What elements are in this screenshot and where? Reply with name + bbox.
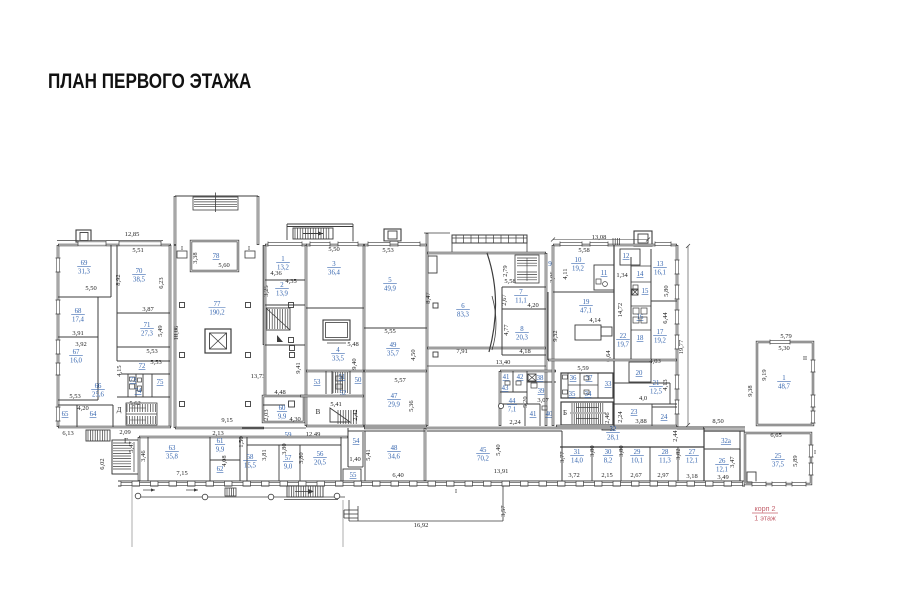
svg-text:30: 30 bbox=[605, 449, 612, 456]
svg-text:9,41: 9,41 bbox=[295, 362, 302, 373]
svg-text:9: 9 bbox=[548, 260, 552, 268]
svg-text:5,48: 5,48 bbox=[347, 341, 358, 348]
svg-text:70,2: 70,2 bbox=[477, 456, 489, 463]
svg-text:12: 12 bbox=[623, 253, 630, 260]
svg-text:72: 72 bbox=[139, 363, 146, 370]
svg-text:36: 36 bbox=[570, 375, 577, 382]
svg-text:I: I bbox=[455, 489, 457, 495]
svg-text:5,49: 5,49 bbox=[157, 325, 164, 336]
svg-text:6,23: 6,23 bbox=[158, 277, 165, 288]
svg-text:12,85: 12,85 bbox=[125, 231, 140, 238]
svg-text:9,0: 9,0 bbox=[284, 464, 293, 471]
svg-text:8: 8 bbox=[520, 326, 524, 333]
svg-text:6,13: 6,13 bbox=[62, 430, 73, 437]
svg-text:5,40: 5,40 bbox=[495, 444, 502, 455]
svg-text:1,50: 1,50 bbox=[238, 436, 245, 447]
svg-text:5,41: 5,41 bbox=[330, 401, 341, 408]
svg-text:25,6: 25,6 bbox=[92, 392, 104, 399]
svg-text:73: 73 bbox=[130, 377, 137, 384]
svg-text:В: В bbox=[316, 408, 321, 416]
svg-text:II: II bbox=[803, 356, 807, 362]
svg-text:Б: Б bbox=[563, 409, 567, 417]
svg-text:16,92: 16,92 bbox=[414, 522, 429, 529]
svg-text:1,34: 1,34 bbox=[616, 272, 628, 279]
svg-text:14,72: 14,72 bbox=[617, 303, 624, 318]
svg-text:35,8: 35,8 bbox=[166, 454, 178, 461]
svg-text:4,35: 4,35 bbox=[285, 278, 296, 285]
svg-text:2,67: 2,67 bbox=[501, 294, 508, 306]
svg-text:17,4: 17,4 bbox=[72, 317, 84, 324]
svg-text:15: 15 bbox=[642, 288, 649, 295]
svg-text:70: 70 bbox=[136, 268, 143, 275]
svg-text:4,20: 4,20 bbox=[527, 302, 538, 309]
svg-text:35: 35 bbox=[569, 391, 576, 398]
svg-text:17: 17 bbox=[657, 329, 664, 336]
svg-text:74: 74 bbox=[135, 388, 142, 395]
svg-text:6: 6 bbox=[461, 303, 465, 310]
svg-text:16,1: 16,1 bbox=[654, 270, 666, 277]
svg-text:11,3: 11,3 bbox=[659, 458, 671, 465]
svg-text:65: 65 bbox=[62, 411, 69, 418]
svg-text:5,60: 5,60 bbox=[218, 262, 229, 269]
svg-text:50: 50 bbox=[355, 377, 362, 384]
svg-text:5,80: 5,80 bbox=[663, 285, 670, 296]
svg-text:35,7: 35,7 bbox=[387, 351, 399, 358]
svg-text:4,03: 4,03 bbox=[649, 358, 660, 365]
svg-text:3,49: 3,49 bbox=[717, 474, 728, 481]
svg-text:29,9: 29,9 bbox=[388, 402, 400, 409]
svg-text:64: 64 bbox=[90, 411, 97, 418]
svg-text:4,13: 4,13 bbox=[662, 379, 669, 390]
svg-text:15,5: 15,5 bbox=[244, 463, 256, 470]
svg-text:11: 11 bbox=[601, 270, 608, 277]
svg-text:11,1: 11,1 bbox=[515, 298, 527, 305]
svg-text:20: 20 bbox=[636, 370, 643, 377]
svg-text:2,97: 2,97 bbox=[657, 472, 669, 479]
svg-text:33: 33 bbox=[605, 381, 612, 388]
svg-text:23: 23 bbox=[631, 409, 638, 416]
svg-text:3,91: 3,91 bbox=[72, 330, 83, 337]
svg-text:5,41: 5,41 bbox=[365, 449, 372, 460]
svg-text:12,1: 12,1 bbox=[716, 467, 728, 474]
svg-text:2,24: 2,24 bbox=[617, 411, 624, 423]
svg-text:9,9: 9,9 bbox=[216, 447, 225, 454]
svg-text:38,5: 38,5 bbox=[133, 277, 145, 284]
svg-text:14,0: 14,0 bbox=[571, 458, 583, 465]
svg-text:8,50: 8,50 bbox=[712, 418, 723, 425]
svg-text:34: 34 bbox=[585, 391, 592, 398]
svg-text:19: 19 bbox=[583, 299, 590, 306]
svg-text:20,3: 20,3 bbox=[516, 335, 528, 342]
svg-text:9,40: 9,40 bbox=[351, 358, 358, 369]
svg-text:6,65: 6,65 bbox=[770, 432, 781, 439]
svg-text:57: 57 bbox=[285, 455, 292, 462]
svg-text:9,15: 9,15 bbox=[221, 417, 232, 424]
svg-text:51: 51 bbox=[339, 374, 346, 381]
svg-text:32: 32 bbox=[610, 426, 617, 433]
svg-text:38: 38 bbox=[537, 375, 544, 382]
svg-text:16: 16 bbox=[637, 314, 644, 321]
svg-text:9,38: 9,38 bbox=[747, 385, 754, 396]
svg-text:3,47: 3,47 bbox=[729, 456, 736, 468]
svg-text:5,53: 5,53 bbox=[382, 247, 393, 254]
svg-text:4,11: 4,11 bbox=[562, 268, 569, 279]
svg-text:5,50: 5,50 bbox=[85, 285, 96, 292]
svg-text:1,40: 1,40 bbox=[349, 456, 360, 463]
svg-text:36,4: 36,4 bbox=[328, 270, 340, 277]
svg-text:28: 28 bbox=[662, 449, 669, 456]
svg-text:2,03: 2,03 bbox=[263, 409, 270, 420]
svg-text:71: 71 bbox=[144, 322, 151, 329]
svg-text:58: 58 bbox=[247, 454, 254, 461]
svg-text:5,89: 5,89 bbox=[792, 455, 799, 466]
svg-text:5,59: 5,59 bbox=[577, 365, 588, 372]
svg-text:5,51: 5,51 bbox=[132, 247, 143, 254]
svg-text:ПЛАН ПЕРВОГО ЭТАЖА: ПЛАН ПЕРВОГО ЭТАЖА bbox=[48, 70, 251, 93]
svg-text:37,5: 37,5 bbox=[772, 462, 784, 469]
svg-text:18,06: 18,06 bbox=[173, 325, 180, 340]
svg-text:3,88: 3,88 bbox=[635, 418, 646, 425]
svg-text:6,40: 6,40 bbox=[392, 472, 403, 479]
svg-text:10: 10 bbox=[575, 257, 582, 264]
svg-text:3,92: 3,92 bbox=[75, 341, 86, 348]
svg-text:4,50: 4,50 bbox=[410, 349, 417, 360]
svg-text:7,15: 7,15 bbox=[176, 470, 187, 477]
svg-text:2,44: 2,44 bbox=[672, 430, 679, 442]
svg-text:49: 49 bbox=[390, 342, 397, 349]
svg-text:корп 2: корп 2 bbox=[754, 504, 775, 513]
svg-text:34,6: 34,6 bbox=[388, 454, 400, 461]
svg-text:33,5: 33,5 bbox=[332, 356, 344, 363]
svg-text:5,58: 5,58 bbox=[578, 247, 589, 254]
svg-text:1: 1 bbox=[782, 375, 785, 382]
svg-text:54: 54 bbox=[353, 438, 360, 445]
svg-text:78: 78 bbox=[213, 253, 220, 260]
svg-text:4,20: 4,20 bbox=[77, 405, 88, 412]
svg-text:13,40: 13,40 bbox=[496, 359, 511, 366]
svg-text:Д: Д bbox=[117, 406, 122, 414]
svg-text:1: 1 bbox=[281, 256, 284, 263]
svg-text:5,36: 5,36 bbox=[408, 400, 415, 412]
svg-text:1 этаж: 1 этаж bbox=[754, 514, 776, 523]
svg-text:190,2: 190,2 bbox=[209, 310, 225, 317]
svg-text:8,47: 8,47 bbox=[425, 292, 432, 304]
svg-text:5,50: 5,50 bbox=[328, 246, 339, 253]
svg-text:29: 29 bbox=[634, 449, 641, 456]
svg-text:12,5: 12,5 bbox=[650, 389, 662, 396]
svg-text:20,5: 20,5 bbox=[314, 460, 326, 467]
svg-text:45: 45 bbox=[480, 447, 487, 454]
svg-text:2,67: 2,67 bbox=[630, 472, 642, 479]
svg-text:41: 41 bbox=[503, 374, 510, 381]
svg-text:9,32: 9,32 bbox=[552, 330, 559, 341]
svg-text:2,42: 2,42 bbox=[352, 409, 359, 420]
svg-text:39: 39 bbox=[538, 388, 545, 395]
svg-text:47: 47 bbox=[391, 393, 398, 400]
svg-text:13: 13 bbox=[657, 261, 664, 268]
svg-text:2,15: 2,15 bbox=[601, 472, 612, 479]
svg-text:19,77: 19,77 bbox=[678, 339, 685, 354]
svg-text:3,38: 3,38 bbox=[192, 252, 199, 263]
svg-text:5,58: 5,58 bbox=[504, 278, 515, 285]
svg-text:26: 26 bbox=[719, 458, 726, 465]
svg-text:13,9: 13,9 bbox=[276, 291, 288, 298]
svg-text:55: 55 bbox=[350, 472, 357, 479]
svg-text:69: 69 bbox=[81, 260, 88, 267]
svg-text:13,08: 13,08 bbox=[592, 234, 607, 241]
svg-text:5,30: 5,30 bbox=[778, 345, 789, 352]
svg-text:5,55: 5,55 bbox=[384, 328, 395, 335]
svg-text:5,47: 5,47 bbox=[128, 441, 135, 453]
svg-text:I: I bbox=[814, 450, 816, 456]
svg-text:4,08: 4,08 bbox=[221, 455, 228, 466]
svg-text:3,25: 3,25 bbox=[263, 285, 270, 296]
svg-text:3,72: 3,72 bbox=[568, 472, 579, 479]
svg-text:3,80: 3,80 bbox=[589, 445, 596, 456]
svg-text:5,57: 5,57 bbox=[394, 377, 406, 384]
svg-text:12,1: 12,1 bbox=[686, 458, 698, 465]
svg-text:43: 43 bbox=[502, 385, 509, 392]
svg-text:60: 60 bbox=[279, 405, 286, 412]
svg-text:3,80: 3,80 bbox=[298, 452, 305, 463]
svg-text:5,53: 5,53 bbox=[69, 393, 80, 400]
svg-text:62: 62 bbox=[217, 466, 224, 473]
svg-text:77: 77 bbox=[214, 301, 221, 308]
svg-text:21: 21 bbox=[653, 380, 660, 387]
svg-text:4,18: 4,18 bbox=[519, 348, 530, 355]
svg-text:19,2: 19,2 bbox=[572, 266, 584, 273]
svg-text:63: 63 bbox=[169, 445, 176, 452]
svg-text:19,2: 19,2 bbox=[654, 338, 666, 345]
svg-text:83,3: 83,3 bbox=[457, 312, 469, 319]
svg-text:5,20: 5,20 bbox=[522, 396, 529, 407]
svg-text:4,77: 4,77 bbox=[503, 324, 510, 336]
svg-text:48,7: 48,7 bbox=[778, 384, 790, 391]
svg-text:3,18: 3,18 bbox=[686, 473, 697, 480]
svg-text:31: 31 bbox=[574, 449, 581, 456]
svg-text:32а: 32а bbox=[721, 438, 731, 445]
svg-text:5,79: 5,79 bbox=[780, 333, 791, 340]
svg-text:66: 66 bbox=[95, 383, 102, 390]
svg-text:28,1: 28,1 bbox=[607, 435, 619, 442]
svg-text:4,15: 4,15 bbox=[116, 365, 123, 376]
svg-text:3: 3 bbox=[332, 261, 336, 268]
svg-text:7,1: 7,1 bbox=[508, 407, 517, 414]
svg-text:56: 56 bbox=[317, 451, 324, 458]
svg-text:48: 48 bbox=[391, 445, 398, 452]
svg-text:3,80: 3,80 bbox=[618, 445, 625, 456]
svg-text:47,1: 47,1 bbox=[580, 308, 592, 315]
svg-text:3,81: 3,81 bbox=[261, 449, 268, 460]
svg-text:2: 2 bbox=[280, 282, 284, 289]
svg-text:19,7: 19,7 bbox=[617, 342, 629, 349]
svg-text:7: 7 bbox=[519, 289, 523, 296]
svg-text:75: 75 bbox=[157, 379, 164, 386]
svg-text:4,30: 4,30 bbox=[289, 416, 300, 423]
svg-text:13,91: 13,91 bbox=[494, 468, 509, 475]
svg-text:4,36: 4,36 bbox=[270, 270, 282, 277]
svg-text:16,0: 16,0 bbox=[70, 358, 82, 365]
svg-text:24: 24 bbox=[661, 414, 668, 421]
svg-text:2,13: 2,13 bbox=[212, 430, 223, 437]
svg-text:3,77: 3,77 bbox=[559, 451, 566, 463]
svg-text:5,53: 5,53 bbox=[146, 348, 157, 355]
svg-text:6,44: 6,44 bbox=[662, 312, 669, 324]
svg-text:7,91: 7,91 bbox=[456, 348, 467, 355]
svg-text:4,0: 4,0 bbox=[639, 395, 647, 402]
svg-text:18: 18 bbox=[637, 335, 644, 342]
svg-text:2,46: 2,46 bbox=[604, 412, 611, 424]
svg-text:3,57: 3,57 bbox=[500, 505, 507, 517]
svg-text:49,9: 49,9 bbox=[384, 286, 396, 293]
svg-text:8,2: 8,2 bbox=[604, 458, 613, 465]
svg-text:2,79: 2,79 bbox=[502, 265, 509, 276]
svg-text:2,09: 2,09 bbox=[119, 429, 130, 436]
svg-text:27: 27 bbox=[689, 449, 696, 456]
svg-text:3,46: 3,46 bbox=[140, 450, 147, 462]
svg-text:3,82: 3,82 bbox=[675, 448, 682, 459]
svg-text:10,1: 10,1 bbox=[631, 458, 643, 465]
svg-text:5,53: 5,53 bbox=[150, 359, 161, 366]
svg-text:3,87: 3,87 bbox=[142, 306, 154, 313]
svg-text:44: 44 bbox=[509, 398, 516, 405]
svg-text:8,92: 8,92 bbox=[115, 274, 122, 285]
svg-text:27,3: 27,3 bbox=[141, 331, 153, 338]
svg-text:9,9: 9,9 bbox=[278, 414, 287, 421]
svg-text:13,73: 13,73 bbox=[251, 373, 266, 380]
svg-text:68: 68 bbox=[75, 308, 82, 315]
svg-text:31,3: 31,3 bbox=[78, 269, 90, 276]
svg-text:53: 53 bbox=[314, 379, 321, 386]
svg-text:5: 5 bbox=[388, 277, 392, 284]
svg-text:42: 42 bbox=[517, 374, 524, 381]
svg-text:3,07: 3,07 bbox=[537, 397, 549, 404]
svg-text:9,19: 9,19 bbox=[761, 369, 768, 380]
svg-text:25: 25 bbox=[775, 453, 782, 460]
svg-text:67: 67 bbox=[73, 349, 80, 356]
svg-text:2,24: 2,24 bbox=[509, 419, 521, 426]
svg-text:41: 41 bbox=[530, 411, 537, 418]
svg-text:22: 22 bbox=[620, 333, 627, 340]
svg-text:61: 61 bbox=[217, 438, 224, 445]
svg-text:4,14: 4,14 bbox=[589, 317, 601, 324]
svg-text:14: 14 bbox=[637, 271, 644, 278]
svg-text:4: 4 bbox=[336, 347, 340, 354]
svg-text:6,02: 6,02 bbox=[99, 458, 106, 469]
